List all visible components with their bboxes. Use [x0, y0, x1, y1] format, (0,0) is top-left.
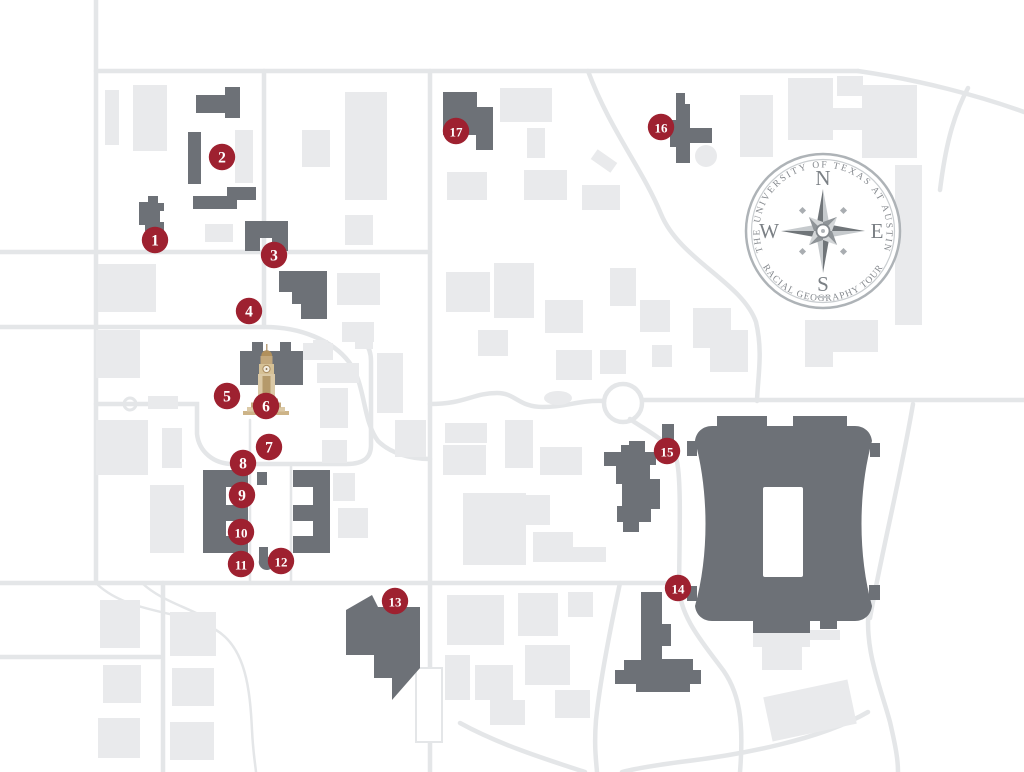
- map-marker-10[interactable]: 10: [228, 519, 254, 545]
- campus-map: THE UNIVERSITY OF TEXAS AT AUSTIN RACIAL…: [0, 0, 1024, 772]
- campus-building: [568, 592, 593, 617]
- campus-building: [447, 595, 504, 645]
- tour-stop-building: [196, 87, 240, 118]
- campus-building: [162, 428, 182, 468]
- campus-building: [443, 445, 486, 475]
- map-marker-3[interactable]: 3: [261, 242, 287, 268]
- campus-building: [133, 85, 167, 151]
- campus-building: [98, 264, 156, 312]
- campus-building: [555, 690, 590, 718]
- campus-building: [170, 612, 216, 656]
- compass-north-label: N: [815, 166, 830, 190]
- street-path: [430, 393, 604, 407]
- roundabout-road: [604, 384, 642, 422]
- campus-building: [833, 108, 863, 130]
- map-marker-14[interactable]: 14: [665, 575, 691, 601]
- campus-building: [810, 630, 840, 640]
- campus-building: [762, 647, 802, 670]
- campus-building: [333, 473, 355, 501]
- street-path: [460, 723, 585, 772]
- campus-building: [446, 272, 490, 312]
- tour-stop-building: [346, 595, 420, 700]
- tower-clock-center: [266, 368, 268, 370]
- campus-building: [652, 345, 672, 367]
- marker-number: 4: [245, 303, 253, 320]
- map-marker-5[interactable]: 5: [214, 383, 240, 409]
- campus-building-outline: [416, 668, 442, 742]
- campus-building: [342, 322, 374, 342]
- campus-building: [463, 493, 526, 565]
- campus-building: [377, 353, 403, 413]
- campus-building: [170, 722, 214, 760]
- campus-building: [540, 447, 582, 475]
- map-marker-2[interactable]: 2: [209, 144, 235, 170]
- tour-stop-building: [279, 271, 327, 319]
- campus-building: [345, 215, 373, 245]
- campus-building: [322, 440, 347, 463]
- campus-building: [788, 78, 833, 140]
- campus-building: [710, 330, 748, 372]
- campus-building: [313, 340, 328, 355]
- street-path: [868, 600, 898, 772]
- campus-building: [556, 350, 592, 380]
- marker-number: 14: [672, 581, 686, 596]
- tour-stop-building: [615, 592, 701, 692]
- map-marker-12[interactable]: 12: [268, 548, 294, 574]
- marker-number: 6: [262, 398, 270, 415]
- marker-number: 8: [239, 455, 247, 472]
- marker-number: 12: [275, 554, 288, 569]
- compass-rose-icon: THE UNIVERSITY OF TEXAS AT AUSTIN RACIAL…: [746, 154, 900, 308]
- map-marker-9[interactable]: 9: [229, 482, 255, 508]
- campus-building: [525, 645, 570, 685]
- street-path: [940, 88, 968, 190]
- campus-building: [600, 350, 626, 374]
- campus-building: [582, 185, 620, 210]
- campus-building: [100, 600, 140, 648]
- tour-stop-building: [257, 472, 267, 485]
- map-marker-8[interactable]: 8: [230, 450, 256, 476]
- campus-building: [317, 363, 359, 383]
- campus-building: [805, 320, 878, 352]
- campus-building: [591, 149, 618, 173]
- campus-building: [345, 92, 387, 200]
- map-marker-11[interactable]: 11: [228, 551, 254, 577]
- campus-building: [445, 655, 470, 700]
- campus-building: [525, 495, 550, 525]
- campus-building: [610, 268, 636, 306]
- marker-number: 10: [235, 525, 248, 540]
- campus-building-round: [695, 145, 717, 167]
- campus-building: [150, 485, 184, 553]
- campus-building: [573, 547, 606, 562]
- map-marker-6[interactable]: 6: [253, 393, 279, 419]
- campus-building: [475, 665, 513, 700]
- campus-building: [837, 76, 863, 96]
- campus-building: [205, 224, 233, 242]
- campus-building: [640, 300, 670, 332]
- marker-number: 5: [223, 388, 231, 405]
- campus-building: [105, 90, 119, 145]
- campus-building: [235, 130, 253, 183]
- campus-building: [518, 593, 558, 636]
- marker-number: 17: [450, 124, 464, 139]
- compass-west-label: W: [759, 219, 779, 243]
- tour-stop-building: [188, 132, 201, 184]
- marker-number: 16: [655, 120, 669, 135]
- tour-stop-building: [293, 470, 330, 553]
- campus-building: [447, 172, 487, 200]
- tour-stop-building: [139, 196, 164, 231]
- map-marker-17[interactable]: 17: [443, 118, 469, 144]
- compass-east-label: E: [871, 219, 884, 243]
- marker-number: 15: [661, 444, 675, 459]
- campus-building: [533, 532, 573, 562]
- campus-building: [524, 170, 567, 200]
- campus-building: [478, 330, 508, 356]
- campus-building: [490, 700, 525, 725]
- campus-building: [805, 352, 833, 367]
- map-marker-13[interactable]: 13: [382, 588, 408, 614]
- campus-building: [338, 508, 368, 538]
- campus-building: [862, 85, 917, 158]
- marker-number: 1: [151, 232, 159, 249]
- campus-building: [96, 420, 148, 475]
- map-marker-1[interactable]: 1: [142, 227, 168, 253]
- campus-building: [763, 680, 856, 742]
- marker-number: 2: [218, 149, 226, 166]
- compass-south-label: S: [817, 272, 829, 296]
- map-marker-15[interactable]: 15: [654, 438, 680, 464]
- map-marker-7[interactable]: 7: [256, 434, 282, 460]
- compass-credit-mark: [816, 296, 830, 298]
- campus-building: [98, 718, 140, 758]
- marker-number: 7: [265, 439, 273, 456]
- marker-number: 13: [389, 594, 403, 609]
- marker-number: 9: [238, 487, 246, 504]
- campus-building: [740, 95, 773, 157]
- campus-building: [172, 668, 214, 706]
- pond: [544, 391, 572, 405]
- campus-building: [103, 665, 141, 703]
- campus-building: [505, 420, 533, 468]
- campus-building: [395, 420, 426, 457]
- campus-building: [320, 388, 348, 428]
- tower-top-block: [261, 356, 273, 364]
- campus-building: [302, 130, 330, 167]
- tower-spire: [266, 344, 267, 351]
- marker-number: 3: [270, 247, 278, 264]
- campus-building: [96, 330, 140, 378]
- map-marker-16[interactable]: 16: [648, 114, 674, 140]
- tour-stop-building: [604, 441, 660, 532]
- tour-stop-building: [193, 187, 256, 209]
- campus-building: [494, 263, 534, 318]
- campus-building: [527, 128, 545, 158]
- campus-building: [445, 423, 487, 443]
- campus-building: [148, 396, 178, 409]
- stadium-field: [763, 487, 803, 577]
- campus-building: [545, 300, 583, 333]
- map-marker-4[interactable]: 4: [236, 298, 262, 324]
- campus-building: [500, 88, 552, 122]
- marker-number: 11: [235, 557, 247, 572]
- stadium-layer: [687, 416, 880, 633]
- campus-building: [337, 273, 380, 305]
